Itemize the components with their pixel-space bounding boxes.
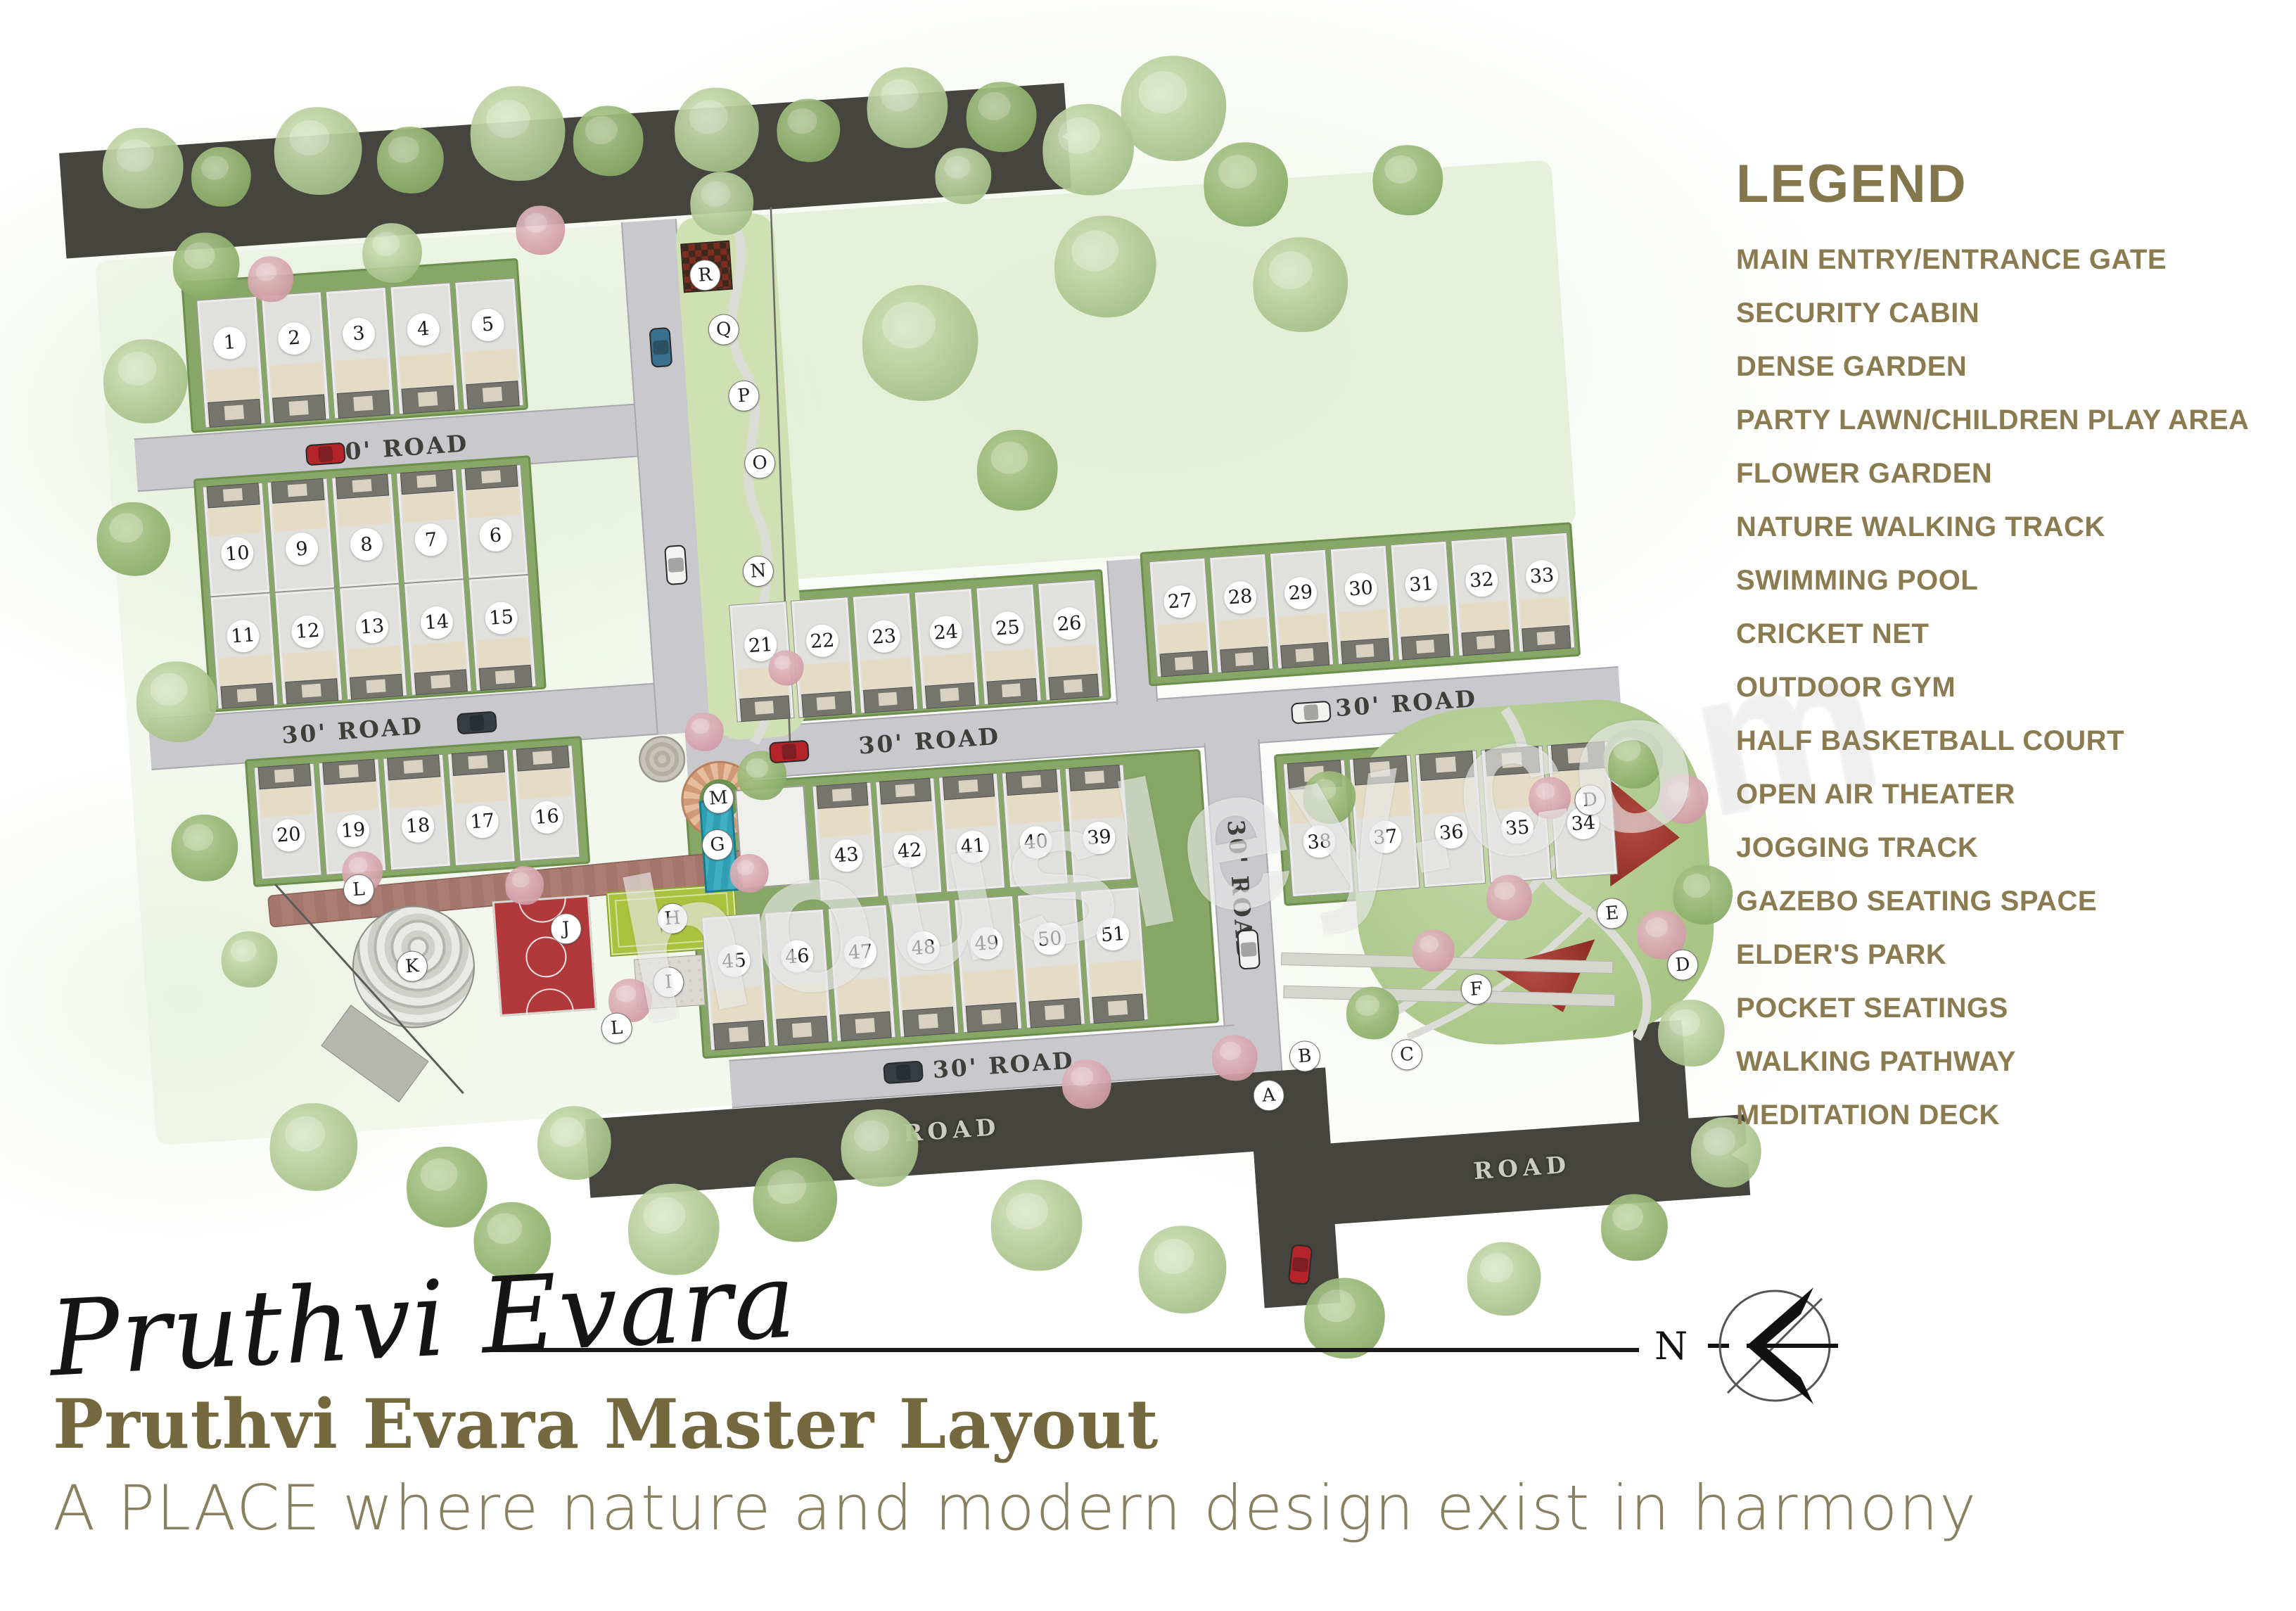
plot-driveway	[1007, 792, 1060, 824]
plot: 51	[1080, 886, 1149, 1024]
plot-driveway	[453, 772, 507, 804]
legend-item: GAZEBO SEATING SPACE	[1736, 886, 2271, 917]
plot-number-text: 11	[230, 624, 255, 647]
legend-item: FLOWER GARDEN	[1736, 458, 2271, 490]
legend-item: SECURITY CABIN	[1736, 298, 2271, 329]
plot-number-text: 32	[1469, 568, 1494, 592]
plot-driveway	[273, 501, 326, 532]
legend-item: OPEN AIR THEATER	[1736, 779, 2271, 810]
plot-driveway	[1090, 960, 1142, 997]
plot-number: 20	[272, 818, 306, 853]
plot-driveway	[900, 974, 953, 1010]
amenity-marker-letter: B	[1297, 1045, 1312, 1067]
plot-driveway	[1071, 788, 1123, 820]
plot-driveway	[335, 357, 389, 393]
plot: 28	[1209, 554, 1273, 673]
legend-item: JOGGING TRACK	[1736, 832, 2271, 864]
plot: 7	[396, 469, 464, 584]
plot: 15	[468, 575, 537, 692]
trees-layer	[56, 0, 1768, 113]
plot-number: 47	[843, 935, 877, 969]
plot: 33	[1511, 533, 1575, 652]
plot-number: 41	[955, 829, 990, 864]
amenity-marker-letter: D	[1582, 789, 1598, 811]
plot-number-text: 18	[405, 815, 431, 838]
plot-driveway	[518, 768, 572, 800]
plot-number: 25	[990, 611, 1025, 645]
plot-parking-pad	[271, 478, 324, 504]
plot: 10	[203, 483, 271, 597]
plot-number-text: 31	[1408, 573, 1434, 596]
amenity-marker-letter: F	[1469, 979, 1484, 1000]
plot-driveway	[1355, 782, 1410, 819]
plot: 40	[1002, 769, 1069, 888]
plot: 50	[1017, 891, 1085, 1029]
plot-driveway	[388, 777, 442, 809]
plot-parking-pad	[863, 687, 914, 713]
plot-number: 7	[414, 523, 448, 557]
legend: LEGEND MAIN ENTRY/ENTRANCE GATESECURITY …	[1736, 153, 2271, 1153]
plot-parking-pad	[879, 778, 931, 805]
plot-driveway	[324, 782, 378, 813]
plot-number: 22	[805, 624, 840, 658]
plot: 5	[454, 278, 523, 410]
plot-number-text: 16	[534, 805, 559, 829]
plot-number: 32	[1465, 563, 1499, 598]
plot: 30	[1330, 545, 1394, 665]
legend-item: MAIN ENTRY/ENTRANCE GATE	[1736, 244, 2271, 276]
tree	[404, 1144, 490, 1230]
master-layout-page: 1234510987611121314152019181716212223242…	[0, 0, 2296, 1611]
plot-driveway	[337, 496, 390, 527]
plot-number-text: 29	[1288, 581, 1313, 604]
legend-item: PARTY LAWN/CHILDREN PLAY AREA	[1736, 405, 2271, 436]
plot-parking-pad	[1353, 755, 1408, 785]
plot-driveway	[412, 641, 466, 673]
plot-number: 16	[530, 800, 564, 834]
legend-item: NATURE WALKING TRACK	[1736, 511, 2271, 543]
plot-parking-pad	[285, 678, 338, 704]
plot-driveway	[1278, 613, 1328, 644]
plot-number: 49	[969, 926, 1004, 960]
plot-parking-pad	[1341, 638, 1391, 665]
plot-driveway	[861, 657, 912, 689]
plot-number: 26	[1052, 606, 1087, 641]
plot-number-text: 19	[340, 819, 366, 842]
plot-parking-pad	[1401, 634, 1450, 661]
plot-driveway	[464, 348, 518, 383]
plot-number-text: 21	[748, 634, 773, 657]
plot-number: 6	[478, 518, 513, 553]
plot-number-text: 49	[974, 931, 999, 955]
plot-number-text: 50	[1037, 927, 1062, 950]
plot-parking-pad	[839, 1012, 892, 1042]
plot: 2	[261, 291, 330, 424]
plot-parking-pad	[1028, 998, 1081, 1029]
plot-number: 15	[484, 601, 518, 635]
plot-number-text: 12	[295, 620, 320, 643]
plot: 24	[914, 588, 980, 709]
legend-title: LEGEND	[1736, 153, 2271, 215]
plot-number: 19	[336, 813, 371, 848]
plot-number: 2	[277, 321, 312, 355]
plot-number: 50	[1033, 922, 1067, 956]
plot-number: 37	[1368, 820, 1403, 854]
plot-parking-pad	[1220, 647, 1270, 673]
plot: 46	[765, 909, 833, 1046]
plot: 25	[976, 584, 1041, 705]
plot-parking-pad	[1048, 673, 1099, 700]
plot-parking-pad	[1419, 751, 1474, 781]
plot-driveway	[1218, 617, 1268, 649]
plot: 39	[1065, 764, 1132, 883]
plot-parking-pad	[272, 394, 326, 423]
plot-driveway	[1519, 596, 1569, 628]
plot-number: 33	[1525, 559, 1560, 594]
plot-number: 31	[1404, 568, 1439, 602]
plot-driveway	[774, 982, 827, 1019]
plot-parking-pad	[322, 759, 376, 785]
plot-number: 36	[1434, 815, 1469, 850]
plot-number: 4	[406, 312, 440, 346]
plot-number: 35	[1500, 810, 1534, 845]
plot-number-text: 48	[911, 936, 936, 960]
plot-parking-pad	[400, 469, 454, 495]
plot-parking-pad	[1485, 746, 1540, 776]
plot-number-text: 20	[276, 824, 301, 847]
plot: 12	[274, 588, 343, 705]
plot-number-text: 39	[1086, 826, 1111, 849]
plot-driveway	[399, 353, 453, 388]
plot-number: 18	[400, 809, 435, 843]
plot-parking-pad	[1159, 651, 1209, 677]
plot: 18	[383, 754, 451, 871]
plot-driveway	[799, 661, 850, 694]
plot-parking-pad	[208, 399, 261, 428]
plot-parking-pad	[350, 674, 403, 700]
amenity-marker-letter: L	[610, 1017, 623, 1039]
tree	[1117, 52, 1230, 165]
amenity-marker-letter: R	[698, 265, 713, 286]
plot-number: 30	[1344, 572, 1378, 606]
amenity-marker-letter: O	[752, 452, 768, 474]
plot-number: 29	[1283, 576, 1318, 611]
plot-parking-pad	[414, 669, 468, 695]
plot-number-text: 10	[224, 542, 250, 565]
legend-item: ELDER'S PARK	[1736, 939, 2271, 971]
amenity-marker-letter: P	[737, 385, 751, 407]
amenity-marker-letter: M	[708, 787, 729, 810]
site-plan-map: 1234510987611121314152019181716212223242…	[56, 0, 1862, 1446]
plot-parking-pad	[966, 1002, 1019, 1033]
plot-driveway	[1398, 604, 1448, 636]
dark-car	[883, 1060, 924, 1084]
plot-parking-pad	[466, 381, 519, 409]
plot-number-text: 8	[359, 533, 373, 556]
plot: 13	[339, 584, 407, 701]
plot-number: 40	[1019, 825, 1053, 860]
plot-parking-pad	[1522, 625, 1571, 652]
red-car	[305, 442, 346, 466]
plot-driveway	[283, 650, 337, 682]
amenity-marker-letter: Q	[715, 319, 732, 340]
plot-parking-pad	[1069, 765, 1121, 791]
plot: 4	[390, 283, 459, 415]
white-car	[1291, 701, 1332, 725]
plot-number-text: 13	[359, 616, 385, 639]
white-car	[1237, 929, 1261, 970]
plot-number-text: 36	[1439, 821, 1464, 844]
plot-driveway	[208, 505, 262, 536]
amenity-marker-letter: N	[750, 560, 767, 582]
plot-number: 5	[471, 307, 505, 342]
legend-item: MEDITATION DECK	[1736, 1100, 2271, 1131]
plot-number: 12	[291, 614, 325, 649]
legend-item: WALKING PATHWAY	[1736, 1046, 2271, 1078]
plot-number-text: 26	[1057, 612, 1082, 635]
plot: 47	[828, 904, 896, 1041]
plot: 11	[210, 592, 279, 709]
plot-parking-pad	[387, 754, 440, 780]
plot-number-text: 23	[872, 625, 897, 648]
plot-driveway	[1421, 777, 1477, 814]
plot-parking-pad	[337, 390, 390, 419]
plot-parking-pad	[1092, 994, 1144, 1024]
plot-number-text: 37	[1372, 825, 1398, 848]
plot-parking-pad	[1006, 769, 1058, 796]
plot-parking-pad	[903, 1007, 955, 1037]
plot-driveway	[270, 362, 324, 397]
plot: 45	[701, 913, 770, 1050]
plot: 26	[1038, 580, 1103, 701]
plot-number-text: 40	[1023, 830, 1049, 853]
plot-parking-pad	[479, 665, 532, 691]
plot-number: 8	[349, 528, 383, 562]
blue-car	[649, 327, 672, 368]
plot-number: 13	[355, 610, 390, 644]
plot: 41	[938, 773, 1005, 892]
plot-number-text: 4	[416, 318, 430, 340]
plot-parking-pad	[1551, 741, 1606, 772]
red-car	[1288, 1244, 1313, 1285]
plot: 32	[1450, 537, 1514, 656]
plot-number-text: 15	[488, 606, 514, 630]
plot-driveway	[347, 646, 402, 677]
plot-number-text: 35	[1505, 816, 1530, 839]
amenity-marker-letter: D	[1675, 954, 1691, 976]
plot-number: 28	[1223, 580, 1258, 615]
plot-number: 46	[780, 939, 815, 974]
amenity-marker-letter: A	[1261, 1085, 1276, 1107]
plot: 49	[954, 896, 1022, 1033]
plot-driveway	[219, 655, 273, 687]
plot-number-text: 7	[424, 529, 438, 552]
plot-number: 42	[893, 834, 927, 868]
plot: 29	[1270, 549, 1334, 669]
plot-number: 39	[1082, 820, 1116, 855]
legend-item: HALF BASKETBALL COURT	[1736, 725, 2271, 757]
plot-parking-pad	[776, 1016, 829, 1046]
plot-number-text: 45	[721, 949, 746, 972]
plot-number: 48	[906, 931, 940, 965]
plot-number: 14	[419, 605, 454, 639]
plot-number: 9	[285, 532, 319, 566]
plot-driveway	[818, 805, 871, 837]
plot-driveway	[260, 787, 314, 818]
plot-driveway	[477, 637, 531, 668]
legend-list: MAIN ENTRY/ENTRANCE GATESECURITY CABINDE…	[1736, 244, 2271, 1131]
plot-number-text: 3	[352, 322, 365, 345]
plot-parking-pad	[220, 683, 274, 709]
plot-parking-pad	[402, 385, 455, 414]
plot: 8	[331, 473, 400, 588]
plot: 9	[267, 478, 335, 592]
plot-number-text: 42	[897, 839, 922, 862]
plot-number-text: 25	[995, 616, 1020, 639]
plot-parking-pad	[207, 483, 260, 509]
amenity-marker-letter: I	[664, 972, 672, 993]
plot-number-text: 47	[848, 941, 873, 964]
legend-item: POCKET SEATINGS	[1736, 993, 2271, 1024]
plot-driveway	[944, 797, 997, 829]
plot-number-text: 27	[1167, 590, 1192, 613]
basketball-court	[492, 895, 597, 1017]
red-car	[769, 740, 810, 764]
plot-parking-pad	[465, 465, 518, 491]
amenity-marker-letter: E	[1605, 903, 1619, 924]
plot-number-text: 30	[1348, 577, 1374, 600]
plot-number: 38	[1302, 824, 1337, 859]
plot-driveway	[1339, 609, 1389, 640]
plot-parking-pad	[816, 782, 868, 809]
plot: 3	[326, 287, 395, 419]
plot: 20	[254, 763, 322, 880]
plot-driveway	[837, 978, 890, 1014]
plot-number: 43	[829, 838, 864, 872]
plot-number-text: 46	[784, 945, 810, 968]
plot-number-text: 51	[1100, 923, 1125, 946]
amenity-marker-letter: G	[709, 834, 725, 855]
north-label: N	[1654, 1324, 1688, 1368]
plot-number: 23	[867, 619, 901, 654]
plot: 23	[853, 592, 918, 713]
plot-number-text: 17	[470, 810, 495, 833]
plot-driveway	[205, 367, 260, 402]
plot-parking-pad	[258, 763, 312, 789]
plot-number: 24	[929, 615, 963, 649]
page-subtitle: A PLACE where nature and modern design e…	[53, 1472, 1977, 1544]
amenity-marker-letter: H	[664, 908, 682, 930]
plot: 43	[812, 782, 879, 901]
plot-number-text: 9	[295, 537, 308, 560]
plot-number: 17	[465, 804, 499, 839]
plot-number-text: 28	[1227, 585, 1253, 609]
plot-parking-pad	[943, 773, 995, 800]
plot-driveway	[466, 487, 520, 518]
plot: 37	[1349, 755, 1420, 893]
plot: 48	[891, 900, 959, 1037]
tree	[988, 1176, 1085, 1274]
plot-parking-pad	[739, 695, 791, 722]
plot-number-text: 41	[960, 835, 986, 858]
plot: 27	[1149, 558, 1213, 677]
plot-number-text: 5	[481, 313, 495, 336]
plot: 14	[404, 579, 472, 696]
plot-number: 3	[341, 317, 376, 351]
plot: 36	[1415, 750, 1486, 888]
amenity-marker-letter: K	[404, 955, 419, 977]
plot-driveway	[710, 987, 763, 1024]
amenity-marker-letter: C	[1399, 1044, 1415, 1066]
plot-driveway	[984, 649, 1035, 681]
plot: 31	[1390, 541, 1454, 661]
legend-item: DENSE GARDEN	[1736, 351, 2271, 383]
plot: 6	[461, 464, 529, 579]
plot-number: 51	[1096, 917, 1130, 952]
plot-driveway	[1459, 600, 1509, 632]
page-title: Pruthvi Evara Master Layout	[53, 1384, 1159, 1464]
plot-driveway	[881, 801, 933, 833]
plot-number: 1	[212, 326, 247, 360]
plot: 17	[447, 749, 516, 866]
plot-number-text: 2	[288, 327, 301, 350]
plot-number-text: 14	[424, 611, 449, 634]
plot-number: 27	[1163, 585, 1197, 619]
plot-number-text: 38	[1306, 830, 1332, 853]
compass-icon	[1708, 1272, 1838, 1427]
plot-number: 10	[220, 536, 255, 571]
plot-driveway	[1026, 964, 1079, 1001]
plot-parking-pad	[801, 691, 853, 718]
plot-driveway	[923, 653, 974, 685]
legend-item: CRICKET NET	[1736, 618, 2271, 650]
plot-parking-pad	[1280, 642, 1330, 669]
plot-number-text: 33	[1529, 564, 1555, 587]
plot-parking-pad	[336, 473, 389, 499]
plot-parking-pad	[1461, 630, 1511, 656]
plot-number-text: 1	[223, 331, 236, 354]
tree	[1135, 1223, 1229, 1316]
amenity-marker-letter: L	[352, 879, 365, 900]
dark-car	[457, 711, 497, 734]
plot: 42	[875, 777, 942, 896]
plot-number: 11	[226, 618, 260, 653]
plot-parking-pad	[516, 745, 570, 771]
plot-number-text: 43	[834, 843, 859, 867]
plot: 16	[512, 745, 580, 862]
plot-number-text: 6	[489, 524, 502, 547]
tree	[1465, 1240, 1543, 1318]
plot-driveway	[1157, 621, 1207, 653]
plot-parking-pad	[986, 677, 1038, 704]
plot-number: 45	[717, 944, 751, 979]
plot-number-text: 22	[810, 629, 835, 652]
plot-parking-pad	[713, 1020, 766, 1050]
plot-driveway	[963, 969, 1016, 1005]
plot-parking-pad	[925, 682, 976, 709]
amenity-marker-letter: J	[561, 918, 570, 940]
plot-driveway	[1046, 644, 1097, 677]
white-car	[664, 545, 688, 585]
plot-number-text: 24	[933, 620, 958, 644]
plot-driveway	[402, 492, 455, 523]
legend-item: SWIMMING POOL	[1736, 565, 2271, 597]
plot-parking-pad	[452, 750, 505, 776]
legend-item: OUTDOOR GYM	[1736, 672, 2271, 703]
plot: 1	[196, 296, 265, 428]
